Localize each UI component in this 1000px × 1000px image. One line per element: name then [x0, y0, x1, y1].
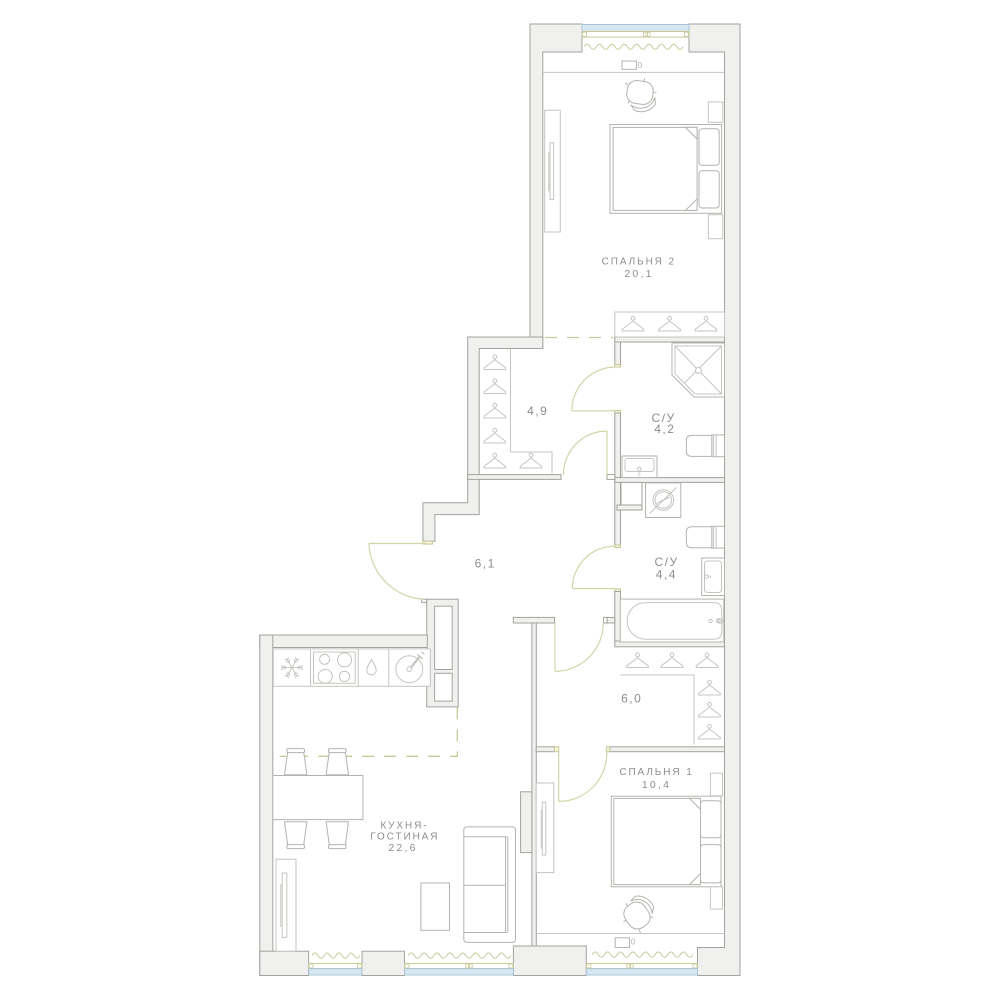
- svg-text:10,4: 10,4: [642, 779, 671, 791]
- svg-text:6,0: 6,0: [621, 692, 642, 706]
- svg-text:КУХНЯ-: КУХНЯ-: [380, 821, 428, 832]
- svg-text:4,9: 4,9: [527, 404, 548, 418]
- svg-text:6,1: 6,1: [475, 557, 496, 571]
- svg-text:22,6: 22,6: [388, 842, 417, 854]
- svg-text:ГОСТИНАЯ: ГОСТИНАЯ: [370, 832, 439, 843]
- svg-text:4,2: 4,2: [654, 422, 675, 436]
- svg-text:СПАЛЬНЯ 2: СПАЛЬНЯ 2: [602, 256, 676, 267]
- svg-text:20,1: 20,1: [624, 268, 653, 280]
- svg-text:4,4: 4,4: [656, 568, 677, 582]
- svg-text:СПАЛЬНЯ 1: СПАЛЬНЯ 1: [619, 767, 693, 778]
